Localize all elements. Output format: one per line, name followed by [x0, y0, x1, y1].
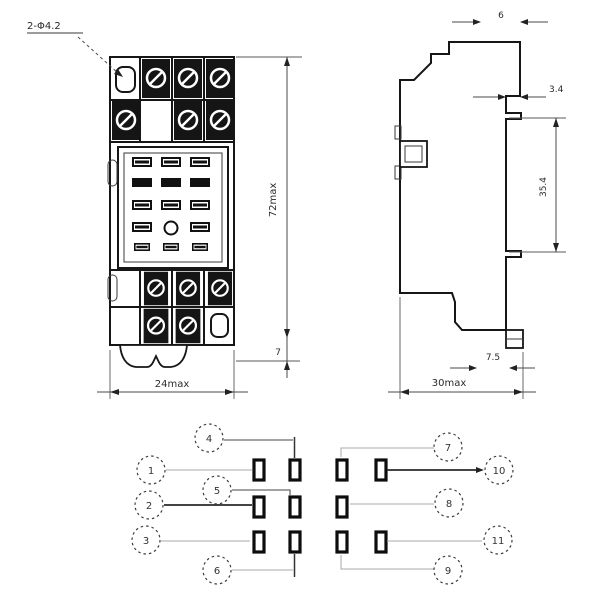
pin-callout-8: 8 — [435, 489, 463, 517]
pin-slot-3 — [254, 532, 264, 552]
pin-callout-3: 3 — [132, 526, 160, 554]
terminal-screw — [174, 59, 202, 98]
pin-slot-1 — [254, 460, 264, 480]
pin-callout-10: 10 — [485, 456, 513, 484]
side-view: 6 3.4 35.4 7.5 — [388, 11, 566, 399]
pin-number: 2 — [146, 501, 152, 512]
pin-slot-2 — [254, 497, 264, 517]
terminal-diagram: 1 4 7 10 2 5 8 3 — [132, 424, 513, 584]
mounting-hole-bottom — [211, 314, 228, 337]
side-rail-dimension: 35.4 — [509, 118, 566, 252]
pin-callout-7: 7 — [434, 433, 462, 461]
pin-slot-5 — [290, 497, 300, 517]
side-clip-label: 7.5 — [486, 353, 500, 363]
pin-number: 1 — [148, 466, 154, 477]
pin-callout-5: 5 — [203, 476, 231, 504]
panel-center-hole — [165, 222, 178, 235]
pin-number: 11 — [492, 536, 505, 547]
terminal-screw — [144, 272, 168, 306]
side-hook-dimension: 3.4 — [473, 85, 564, 100]
leader-pin-9 — [341, 555, 434, 569]
side-depth-label: 30max — [432, 378, 467, 389]
terminal-screw — [176, 309, 201, 343]
front-view: 2-Φ4.2 72max 7 24max — [27, 21, 302, 399]
pin-number: 7 — [445, 443, 451, 454]
pin-callout-6: 6 — [203, 556, 231, 584]
pin-slot-6 — [290, 532, 300, 552]
pin-number: 6 — [214, 566, 220, 577]
pin-number: 9 — [445, 566, 451, 577]
front-bottom-terminal-grid — [108, 270, 234, 345]
front-foot-dimension: 7 — [236, 338, 300, 378]
leader-pin-5 — [232, 490, 290, 495]
front-socket-panel — [108, 147, 228, 268]
leader-pin-10-arrow — [476, 467, 484, 473]
terminal-screw — [144, 309, 169, 343]
pin-number: 8 — [446, 499, 452, 510]
pin-callout-1: 1 — [137, 456, 165, 484]
terminal-screw — [112, 101, 140, 140]
front-foot-label: 7 — [275, 348, 281, 358]
pin-slot-9 — [337, 532, 347, 552]
side-body-outline — [400, 42, 521, 330]
pin-number: 4 — [206, 434, 212, 445]
terminal-screw — [176, 272, 200, 306]
terminal-screw — [208, 272, 232, 306]
pin-slot-4 — [290, 460, 300, 480]
pin-callout-2: 2 — [135, 491, 163, 519]
side-latch-window — [400, 141, 427, 167]
pin-callout-11: 11 — [484, 526, 512, 554]
pin-number: 5 — [214, 486, 220, 497]
front-width-label: 24max — [155, 379, 190, 390]
relay-socket-drawing: 2-Φ4.2 72max 7 24max — [0, 0, 600, 597]
pin-callout-4: 4 — [195, 424, 223, 452]
pin-slot-8 — [337, 497, 347, 517]
terminal-screw — [174, 101, 202, 140]
side-tab-label: 6 — [498, 11, 504, 21]
pin-slot-11 — [376, 532, 386, 552]
terminal-screw — [206, 101, 234, 140]
side-hook-label: 3.4 — [549, 85, 564, 95]
side-tab-dimension: 6 — [452, 11, 548, 25]
side-clip-dimension: 7.5 — [450, 353, 535, 371]
front-height-label: 72max — [268, 183, 279, 218]
pin-number: 10 — [493, 466, 506, 477]
terminal-screw — [206, 59, 234, 98]
pin-slot-10 — [376, 460, 386, 480]
mounting-hole-label: 2-Φ4.2 — [27, 21, 61, 32]
pin-callout-9: 9 — [434, 556, 462, 584]
technical-drawing-page: 2-Φ4.2 72max 7 24max — [0, 0, 600, 597]
terminal-screw — [142, 59, 170, 98]
front-height-dimension: 72max — [236, 57, 302, 338]
din-foot — [120, 345, 187, 367]
pin-number: 3 — [143, 536, 149, 547]
pin-slot-7 — [337, 460, 347, 480]
leader-pin-7 — [341, 448, 434, 457]
mounting-hole-callout: 2-Φ4.2 — [27, 21, 123, 77]
side-rail-label: 35.4 — [539, 177, 549, 197]
